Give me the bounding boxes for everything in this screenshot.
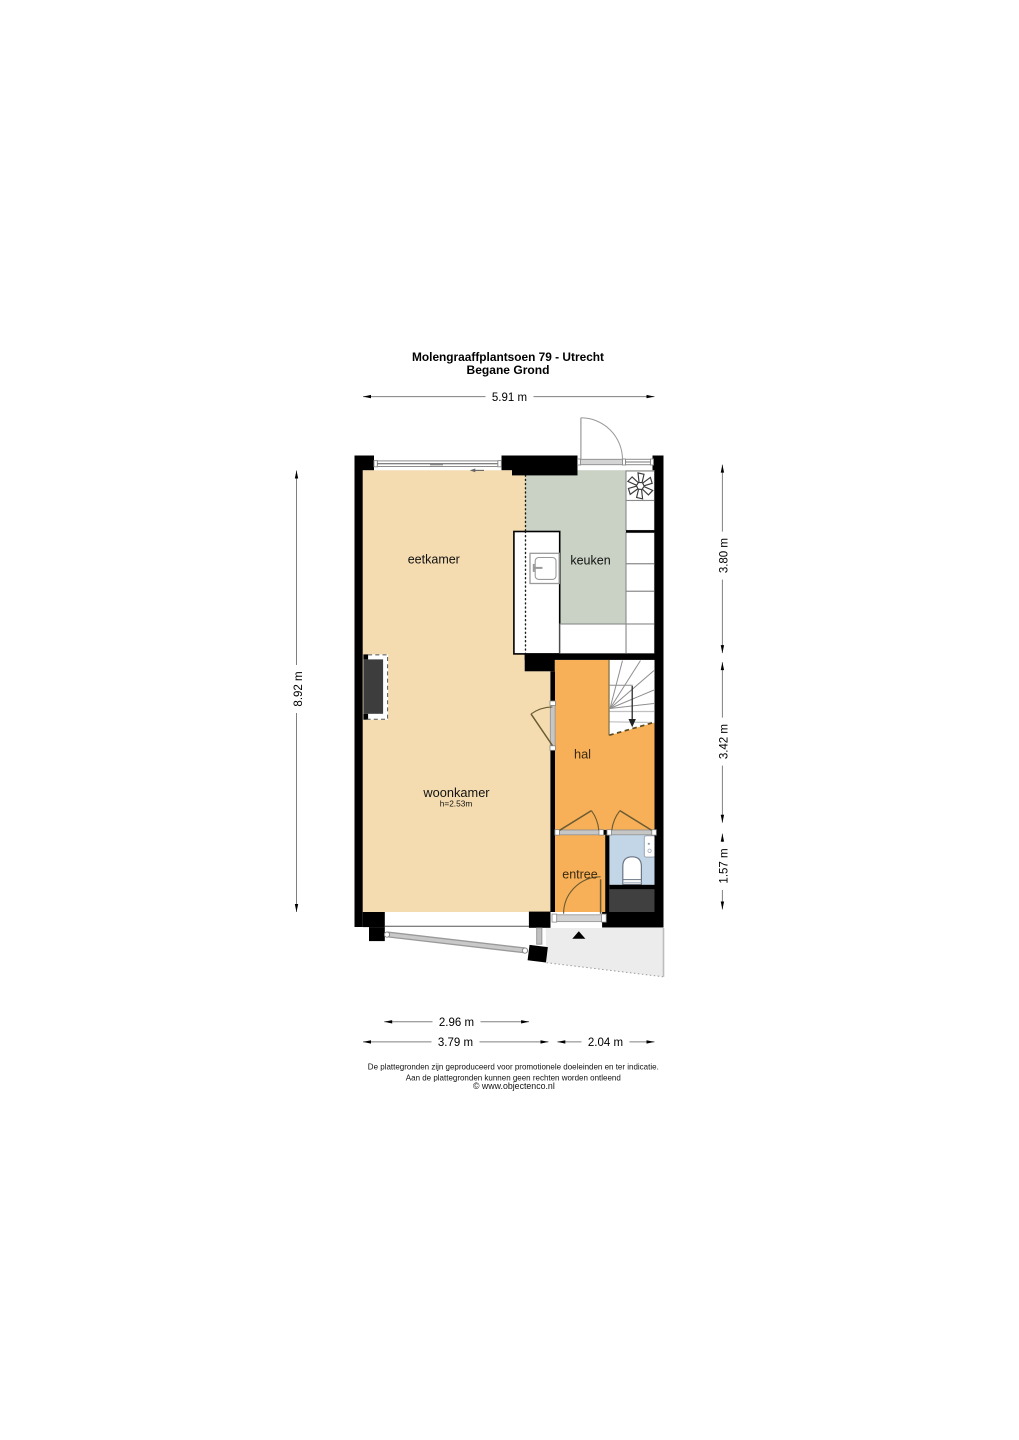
svg-text:8.92 m: 8.92 m xyxy=(293,671,305,706)
svg-text:Molengraaffplantsoen 79 - Utre: Molengraaffplantsoen 79 - Utrecht xyxy=(412,350,604,364)
svg-text:entree: entree xyxy=(562,868,597,882)
svg-text:© www.objectenco.nl: © www.objectenco.nl xyxy=(473,1081,555,1091)
svg-text:3.80 m: 3.80 m xyxy=(719,538,731,573)
svg-text:5.91 m: 5.91 m xyxy=(492,392,527,404)
svg-text:1.57 m: 1.57 m xyxy=(719,848,731,883)
svg-text:h=2.53m: h=2.53m xyxy=(440,798,473,808)
svg-text:hal: hal xyxy=(574,747,591,762)
svg-text:De plattegronden zijn geproduc: De plattegronden zijn geproduceerd voor … xyxy=(368,1062,659,1072)
svg-text:keuken: keuken xyxy=(570,554,610,568)
svg-text:2.04 m: 2.04 m xyxy=(588,1037,623,1049)
svg-text:3.42 m: 3.42 m xyxy=(719,724,731,759)
svg-text:eetkamer: eetkamer xyxy=(408,552,460,566)
svg-text:2.96 m: 2.96 m xyxy=(439,1017,474,1029)
svg-text:3.79 m: 3.79 m xyxy=(438,1037,473,1049)
svg-text:Begane Grond: Begane Grond xyxy=(467,363,550,377)
